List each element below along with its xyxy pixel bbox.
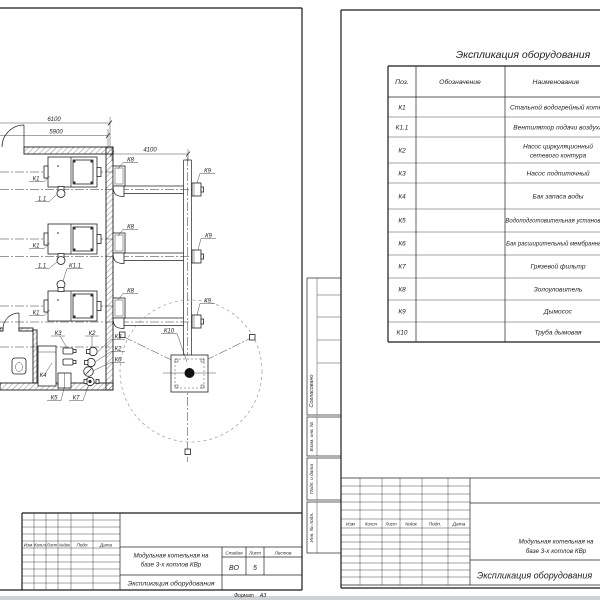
right-title-block: Изм Колич Лист №док Подп. Дата Модульная… — [341, 478, 600, 585]
row-pos-10: К10 — [397, 330, 408, 337]
callout-k8-3: К8 — [127, 289, 135, 295]
rtb-doc-title: Экспликация оборудования — [477, 571, 592, 581]
water-treatment-k5 — [58, 373, 71, 388]
fan-3 — [57, 281, 65, 292]
room-door — [3, 313, 19, 330]
col-header-name: Наименование — [533, 79, 580, 86]
row-name-5: Водоподготовительная установка — [505, 219, 600, 225]
callout-k6: К6 — [115, 358, 123, 364]
rtb-col-kolich: Колич — [365, 522, 378, 527]
margin-vzam: Взам. инв. № — [309, 422, 315, 452]
rtb-project-line1: Модульная котельная на — [518, 538, 594, 546]
table-title: Экспликация оборудования — [456, 49, 591, 61]
row-pos-3: К3 — [398, 171, 406, 178]
row-name-0: Стальной водогрейный котёл — [510, 104, 600, 112]
row-pos-2: К2 — [398, 148, 406, 155]
row-name-7: Грязевой фильтр — [531, 263, 586, 271]
rtb-col-ndok: №док — [405, 522, 418, 527]
row-pos-1: К1.1 — [396, 125, 409, 132]
callout-k3: К3 — [55, 331, 63, 337]
callout-k9-1: К9 — [204, 169, 212, 175]
row-name-9: Дымосос — [543, 309, 573, 316]
dim-6100: 6100 — [47, 117, 61, 123]
callout-k10: К10 — [164, 329, 175, 335]
row-name-10: Труба дымовая — [534, 329, 582, 337]
dim-5900: 5900 — [49, 130, 63, 136]
fan-2 — [57, 254, 65, 265]
left-title-block: Изм Колич Лист №док Подп Дата Модульная … — [22, 513, 302, 599]
pumps-k3 — [63, 348, 76, 365]
sink — [12, 358, 26, 374]
format-label: Формат — [234, 593, 254, 599]
callout-k1-1: К1 — [33, 177, 40, 183]
tb-col-podp: Подп — [77, 543, 88, 548]
left-sheet-frame — [0, 8, 302, 590]
spec-table: Поз. Обозначение Наименование К1 Стально… — [388, 66, 600, 342]
row-pos-5: К5 — [398, 218, 406, 225]
callout-k9-2: К9 — [205, 234, 213, 240]
storage-tank-k4 — [38, 346, 56, 386]
row-pos-6: К6 — [398, 241, 406, 248]
rtb-project-line2: базе 3-х котлов КВр — [526, 547, 587, 555]
row-name-4: Бак запаса воды — [532, 193, 583, 201]
row-name-3: Насос подпиточный — [526, 170, 589, 178]
callout-k9-3: К9 — [204, 299, 212, 305]
right-sheet: Экспликация оборудования Поз. Обозначени… — [307, 10, 600, 588]
callout-k1-3: К1 — [33, 311, 40, 317]
flue-duct — [184, 160, 204, 368]
pumps-k2 — [85, 347, 98, 366]
row-name-6: Бак расширительный мембранный — [506, 241, 600, 248]
tb-sheets-label: Листов — [274, 551, 292, 556]
callout-k3-b: К3 — [115, 335, 123, 341]
tb-stage-label: Стадия — [225, 551, 243, 556]
margin-boxes: Согласовано Взам. инв. № Подп. и дата Ин… — [307, 278, 341, 553]
chimney — [120, 300, 263, 455]
callout-k7: К7 — [73, 396, 81, 402]
ash-collectors-and-flues — [113, 166, 184, 329]
drawing-sheets: 6100 5900 4100 — [0, 0, 600, 600]
boiler-3 — [44, 291, 101, 321]
row-name-1: Вентилятор подачи воздуха — [513, 124, 600, 132]
callout-k2: К2 — [89, 331, 97, 337]
tb-col-kolich: Колич — [34, 543, 46, 548]
col-header-pos: Поз. — [395, 79, 409, 86]
col-header-code: Обозначение — [439, 78, 481, 86]
tb-project-line2: базе 3-х котлов КВр — [141, 561, 202, 569]
format-value: А3 — [259, 593, 267, 599]
tb-stage-value: ВО — [229, 565, 240, 572]
boiler-1 — [44, 157, 101, 187]
row-name-2a: Насос циркуляционный — [523, 143, 593, 151]
margin-inv: Инв. № подл. — [309, 513, 315, 543]
fan-1 — [57, 187, 65, 198]
row-pos-9: К9 — [398, 309, 406, 316]
cad-viewer-canvas: 6100 5900 4100 — [0, 0, 600, 600]
tb-project-line1: Модульная котельная на — [133, 552, 209, 560]
row-pos-4: К4 — [398, 194, 406, 201]
tb-col-data: Дата — [99, 543, 113, 548]
tb-col-list: Лист — [46, 543, 58, 548]
tb-sheet-value: 5 — [253, 565, 257, 572]
tb-sheet-label: Лист — [248, 551, 261, 556]
callout-k8-1: К8 — [127, 158, 135, 164]
callout-k8-2: К8 — [127, 225, 135, 231]
tb-col-ndok: №док — [59, 543, 71, 548]
entrance-door — [2, 125, 24, 147]
row-pos-0: К1 — [398, 105, 406, 112]
row-name-8: Золоуловитель — [534, 287, 583, 294]
rtb-col-list: Лист — [384, 522, 397, 527]
callout-fan-1: 1.1 — [38, 197, 46, 203]
row-pos-8: К8 — [398, 287, 406, 294]
rtb-col-izm: Изм — [346, 522, 356, 528]
boiler-2 — [44, 224, 101, 254]
row-pos-7: К7 — [398, 264, 406, 271]
tb-col-izm: Изм — [24, 543, 33, 548]
tb-doc-title: Экспликация оборудования — [128, 580, 215, 588]
row-name-2b: сетевого контура — [530, 153, 587, 160]
margin-approved: Согласовано — [309, 375, 315, 408]
callout-fan-3: К1.1 — [69, 264, 81, 270]
callout-k4: К4 — [40, 373, 48, 379]
margin-podp: Подп. и дата — [309, 464, 315, 494]
membrane-tank-k6 — [84, 367, 94, 377]
rtb-col-data: Дата — [452, 522, 466, 528]
left-sheet: 6100 5900 4100 — [0, 8, 302, 599]
dim-4100: 4100 — [143, 148, 157, 154]
callout-k2-b: К2 — [115, 347, 123, 353]
callout-k1-2: К1 — [33, 244, 40, 250]
rtb-col-podp: Подп. — [429, 522, 442, 528]
callout-fan-2: 1.1 — [38, 264, 46, 270]
callout-k5: К5 — [51, 396, 59, 402]
